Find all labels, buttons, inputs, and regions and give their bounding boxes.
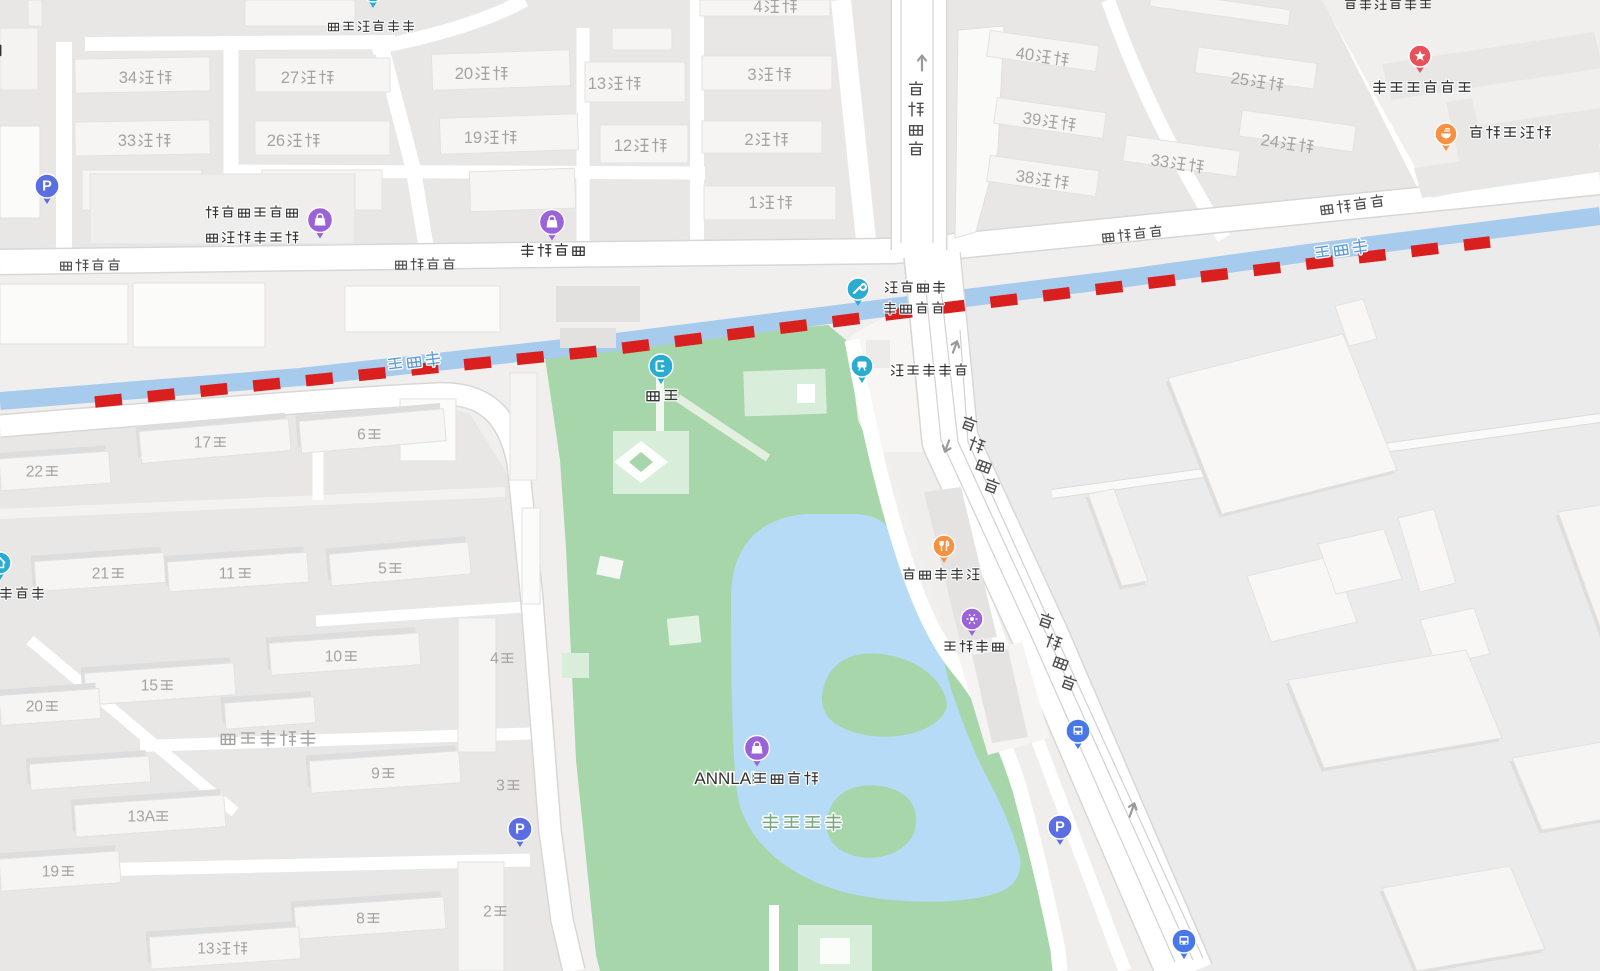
svg-text:10: 10: [325, 649, 343, 666]
svg-text:38: 38: [1015, 166, 1036, 187]
svg-text:15: 15: [141, 678, 159, 695]
svg-text:25: 25: [1230, 68, 1251, 89]
svg-text:P: P: [1055, 820, 1065, 836]
svg-text:P: P: [515, 822, 525, 838]
svg-text:21: 21: [92, 566, 109, 583]
svg-text:3: 3: [496, 778, 505, 795]
svg-text:12: 12: [614, 136, 632, 155]
svg-text:33: 33: [118, 131, 136, 150]
svg-text:24: 24: [1260, 130, 1281, 151]
svg-text:13: 13: [588, 74, 606, 93]
svg-text:40: 40: [1015, 43, 1036, 64]
svg-text:4: 4: [753, 0, 762, 16]
svg-text:4: 4: [490, 651, 499, 668]
svg-text:22: 22: [26, 464, 43, 481]
svg-text:17: 17: [194, 435, 211, 452]
svg-text:13: 13: [197, 941, 214, 958]
svg-text:2: 2: [744, 130, 753, 149]
svg-text:2: 2: [483, 904, 492, 921]
svg-text:3: 3: [747, 65, 756, 84]
svg-text:8: 8: [356, 911, 365, 928]
svg-text:20: 20: [26, 699, 44, 716]
svg-text:34: 34: [119, 68, 137, 87]
svg-text:13A: 13A: [127, 809, 155, 826]
svg-text:33: 33: [1150, 150, 1171, 171]
svg-text:26: 26: [267, 131, 285, 150]
svg-text:6: 6: [357, 427, 366, 444]
svg-text:20: 20: [455, 64, 473, 83]
svg-text:19: 19: [464, 128, 482, 147]
svg-text:9: 9: [371, 766, 380, 783]
svg-text:27: 27: [281, 68, 299, 87]
svg-text:19: 19: [42, 864, 59, 881]
svg-text:1: 1: [748, 193, 757, 212]
svg-text:39: 39: [1022, 108, 1043, 129]
svg-text:ANNLAI: ANNLAI: [694, 769, 755, 788]
svg-text:5: 5: [378, 561, 387, 578]
svg-text:P: P: [42, 179, 52, 195]
svg-text:11: 11: [219, 566, 235, 583]
